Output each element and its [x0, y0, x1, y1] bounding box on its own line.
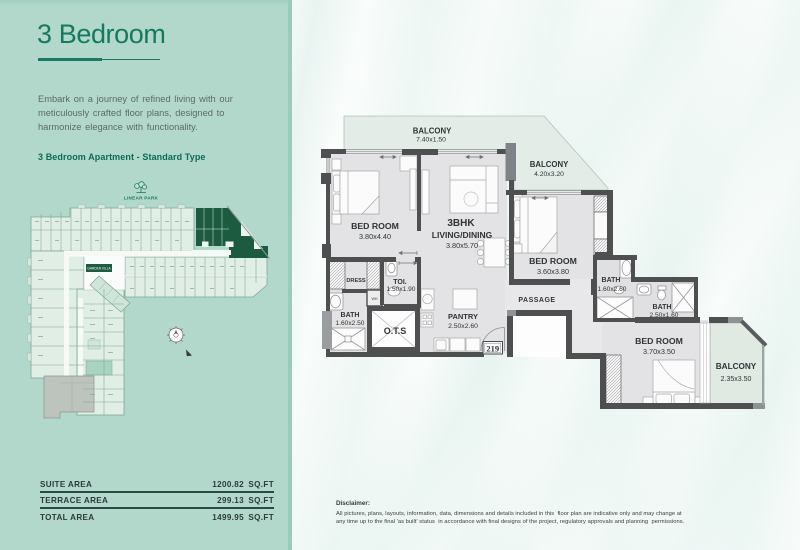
- svg-text:3.80x4.40: 3.80x4.40: [359, 232, 391, 241]
- svg-text:BALCONY: BALCONY: [716, 362, 757, 371]
- svg-text:O.T.S: O.T.S: [384, 326, 407, 336]
- svg-text:2.50x2.60: 2.50x2.60: [448, 323, 478, 330]
- svg-text:7.40x1.50: 7.40x1.50: [416, 137, 446, 144]
- svg-text:PASSAGE: PASSAGE: [518, 297, 555, 304]
- svg-text:219: 219: [486, 343, 499, 353]
- svg-text:LIVING/DINING: LIVING/DINING: [432, 230, 493, 240]
- svg-text:BED ROOM: BED ROOM: [635, 336, 683, 346]
- svg-text:3.80x5.70: 3.80x5.70: [446, 241, 478, 250]
- svg-text:TOI.: TOI.: [393, 279, 407, 286]
- svg-text:BATH: BATH: [341, 312, 360, 319]
- svg-text:WH: WH: [372, 297, 378, 301]
- svg-text:3BHK: 3BHK: [447, 218, 475, 229]
- svg-text:BATH: BATH: [602, 277, 621, 284]
- svg-text:1.60x2.50: 1.60x2.50: [336, 320, 365, 327]
- svg-text:2.35x3.50: 2.35x3.50: [721, 376, 752, 383]
- svg-text:BALCONY: BALCONY: [413, 127, 452, 136]
- svg-text:1.60x2.60: 1.60x2.60: [598, 286, 627, 293]
- svg-text:BED ROOM: BED ROOM: [351, 221, 399, 231]
- svg-text:4.20x3.20: 4.20x3.20: [534, 171, 564, 178]
- svg-text:DRESS: DRESS: [346, 278, 366, 284]
- svg-text:3.60x3.80: 3.60x3.80: [537, 267, 569, 276]
- svg-text:PANTRY: PANTRY: [448, 312, 478, 321]
- svg-text:3.70x3.50: 3.70x3.50: [643, 347, 675, 356]
- svg-text:BATH: BATH: [653, 304, 672, 311]
- svg-text:BALCONY: BALCONY: [530, 160, 569, 169]
- svg-text:BED ROOM: BED ROOM: [529, 256, 577, 266]
- svg-text:1.50x1.90: 1.50x1.90: [387, 286, 416, 293]
- svg-text:2.50x1.60: 2.50x1.60: [650, 312, 679, 319]
